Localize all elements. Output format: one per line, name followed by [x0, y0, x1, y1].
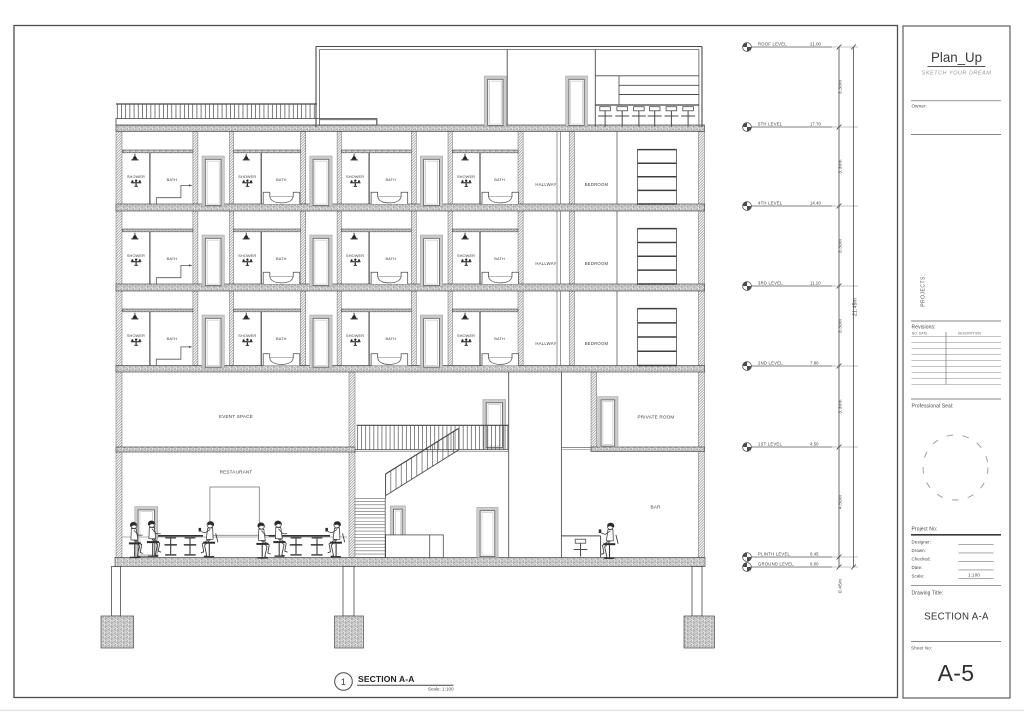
svg-text:4TH LEVEL: 4TH LEVEL — [758, 200, 783, 205]
svg-text:1: 1 — [341, 677, 346, 687]
svg-text:5TH LEVEL: 5TH LEVEL — [758, 121, 783, 126]
svg-text:BATH: BATH — [276, 336, 287, 341]
svg-text:SHOWER: SHOWER — [238, 333, 256, 338]
svg-text:PROJECTS:: PROJECTS: — [921, 274, 927, 307]
svg-text:Date:: Date: — [912, 565, 923, 570]
svg-text:BATH: BATH — [385, 336, 396, 341]
svg-text:ROOF LEVEL: ROOF LEVEL — [758, 41, 787, 46]
svg-text:3.30m: 3.30m — [838, 239, 844, 253]
svg-text:EVENT SPACE: EVENT SPACE — [219, 414, 253, 419]
svg-text:SHOWER: SHOWER — [457, 174, 475, 179]
svg-text:Plan_Up: Plan_Up — [931, 50, 982, 65]
svg-text:1:100: 1:100 — [968, 573, 980, 578]
svg-text:SHOWER: SHOWER — [346, 174, 364, 179]
svg-text:Drawing Title:: Drawing Title: — [912, 591, 944, 597]
svg-text:SHOWER: SHOWER — [238, 174, 256, 179]
svg-text:3.30m: 3.30m — [838, 319, 844, 333]
svg-text:7.80: 7.80 — [810, 360, 819, 365]
svg-text:3.30m: 3.30m — [838, 399, 844, 413]
svg-text:A-5: A-5 — [938, 660, 975, 686]
svg-text:Revisions:: Revisions: — [912, 325, 936, 331]
svg-text:Drawn:: Drawn: — [912, 548, 927, 553]
svg-text:HALLWAY: HALLWAY — [535, 182, 556, 187]
svg-text:Scale:: Scale: — [912, 574, 925, 579]
svg-text:BATH: BATH — [385, 256, 396, 261]
svg-text:4.50: 4.50 — [810, 441, 819, 446]
svg-text:0.45: 0.45 — [810, 551, 819, 556]
svg-text:BATH: BATH — [494, 177, 505, 182]
svg-text:BATH: BATH — [167, 256, 178, 261]
svg-text:1ST LEVEL: 1ST LEVEL — [758, 441, 782, 446]
svg-text:11.10: 11.10 — [810, 280, 821, 285]
svg-text:3RD LEVEL: 3RD LEVEL — [758, 280, 783, 285]
svg-text:3.30m: 3.30m — [838, 159, 844, 173]
svg-text:GROUND LEVEL: GROUND LEVEL — [758, 561, 794, 566]
svg-text:SHOWER: SHOWER — [346, 333, 364, 338]
svg-text:SHOWER: SHOWER — [127, 333, 145, 338]
svg-text:17.70: 17.70 — [810, 121, 822, 126]
svg-text:PLINTH LEVEL: PLINTH LEVEL — [758, 551, 791, 556]
svg-text:SHOWER: SHOWER — [127, 174, 145, 179]
svg-text:14.40: 14.40 — [810, 200, 822, 205]
svg-text:Sheet No:: Sheet No: — [911, 646, 932, 651]
svg-text:SHOWER: SHOWER — [127, 253, 145, 258]
svg-text:BAR: BAR — [650, 505, 661, 510]
svg-text:BEDROOM: BEDROOM — [585, 341, 609, 346]
svg-text:Project No:: Project No: — [912, 527, 938, 533]
svg-text:BEDROOM: BEDROOM — [585, 182, 609, 187]
svg-text:21.00: 21.00 — [810, 41, 822, 46]
svg-text:Professional Seal:: Professional Seal: — [912, 404, 954, 410]
svg-text:NO. DATE: NO. DATE — [912, 331, 928, 335]
svg-text:Designer:: Designer: — [912, 540, 932, 545]
svg-text:BATH: BATH — [167, 177, 178, 182]
svg-text:BEDROOM: BEDROOM — [585, 261, 609, 266]
svg-text:RESTAURANT: RESTAURANT — [220, 470, 253, 475]
svg-text:SHOWER: SHOWER — [457, 253, 475, 258]
svg-text:PRIVATE ROOM: PRIVATE ROOM — [638, 414, 675, 419]
svg-text:BATH: BATH — [494, 256, 505, 261]
svg-text:SHOWER: SHOWER — [238, 253, 256, 258]
svg-text:4.50m: 4.50m — [838, 495, 844, 509]
svg-text:HALLWAY: HALLWAY — [535, 341, 556, 346]
svg-text:Scale: 1:100: Scale: 1:100 — [428, 686, 454, 691]
svg-text:SECTION A-A: SECTION A-A — [358, 674, 415, 684]
svg-text:SKETCH YOUR DREAM: SKETCH YOUR DREAM — [922, 71, 992, 77]
svg-text:HALLWAY: HALLWAY — [535, 261, 556, 266]
svg-text:BATH: BATH — [276, 256, 287, 261]
svg-text:BATH: BATH — [276, 177, 287, 182]
svg-text:DESCRIPTION: DESCRIPTION — [958, 331, 981, 335]
svg-text:0.45m: 0.45m — [838, 579, 844, 593]
svg-text:SECTION A-A: SECTION A-A — [924, 612, 989, 623]
svg-text:SHOWER: SHOWER — [346, 253, 364, 258]
svg-text:Checked:: Checked: — [912, 557, 931, 562]
svg-text:3.30m: 3.30m — [838, 80, 844, 94]
svg-text:21.45m: 21.45m — [853, 298, 859, 316]
svg-text:2ND LEVEL: 2ND LEVEL — [758, 360, 783, 365]
svg-text:Owner:: Owner: — [912, 104, 927, 109]
svg-text:BATH: BATH — [385, 177, 396, 182]
svg-text:BATH: BATH — [494, 336, 505, 341]
svg-text:0.00: 0.00 — [810, 561, 819, 566]
svg-text:BATH: BATH — [167, 336, 178, 341]
svg-text:SHOWER: SHOWER — [457, 333, 475, 338]
